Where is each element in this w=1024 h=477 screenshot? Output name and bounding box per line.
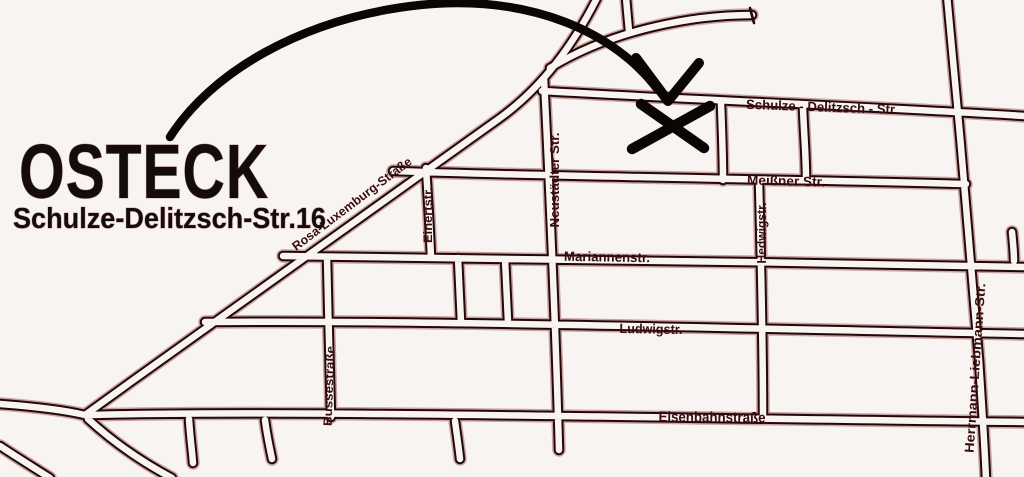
street-label-eisenbahn: Eisenbahnstraße <box>658 410 765 427</box>
map-canvas: Schulze - Delitzsch - Str. Meißner Str. … <box>0 0 1024 477</box>
street-label-busse: Bussestraße <box>321 345 338 426</box>
street-label-hedwig: Hedwigstr. <box>755 203 769 264</box>
street-label-mariannen: Mariannenstr. <box>564 249 650 265</box>
brand-subtitle: Schulze-Delitzsch-Str.16 <box>13 203 326 235</box>
street-label-ludwig: Ludwigstr. <box>619 321 682 337</box>
street-label-einert: Einertstr. <box>423 187 435 243</box>
map-background <box>0 0 1024 477</box>
street-label-meissner: Meißner Str. <box>747 172 825 189</box>
street-label-neustaedter: Neustädter Str. <box>548 133 562 228</box>
hand-drawn-map: Schulze - Delitzsch - Str. Meißner Str. … <box>0 0 1024 477</box>
